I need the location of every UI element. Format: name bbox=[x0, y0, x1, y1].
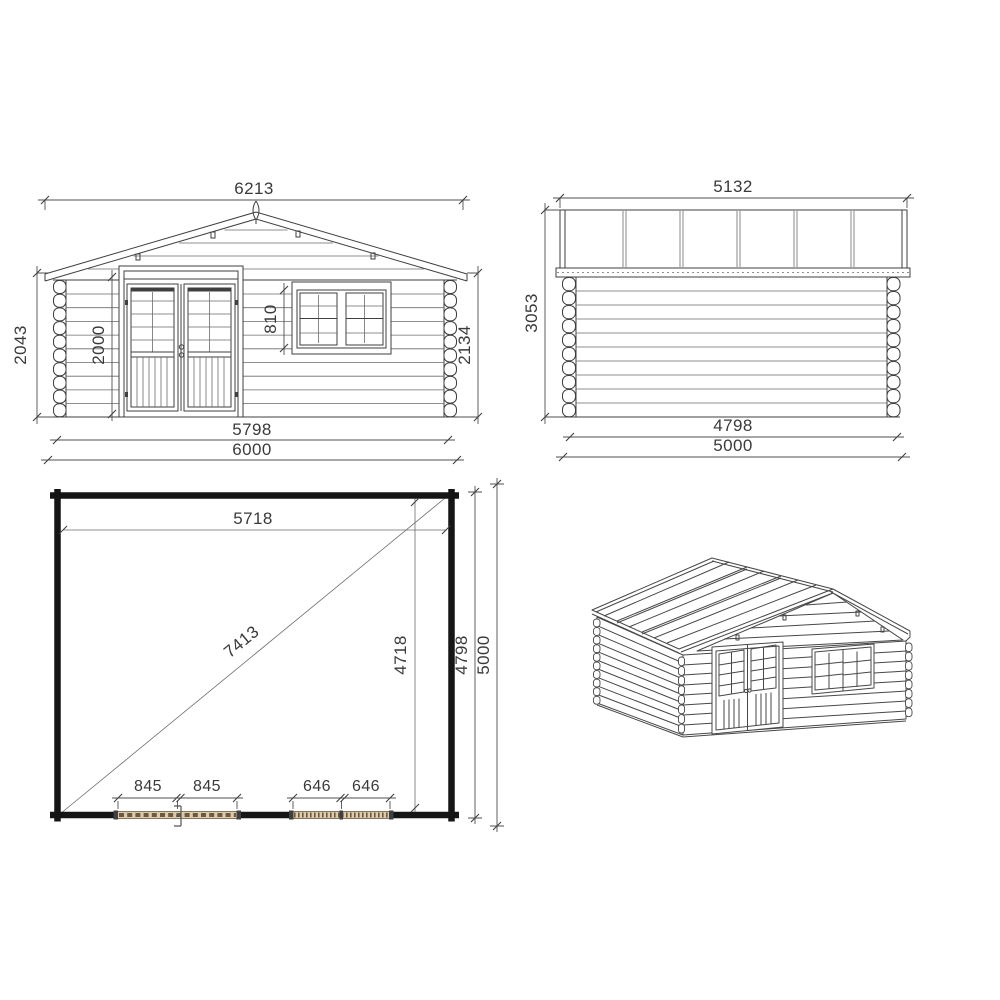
dim-plan-door-half-a-label: 845 bbox=[134, 778, 162, 795]
dim-side-total-depth-label: 5000 bbox=[713, 436, 752, 455]
side-elevation-view: 5132 3053 bbox=[522, 177, 914, 461]
dim-plan-door-half-b-label: 845 bbox=[193, 778, 221, 795]
dim-front-height-left: 2043 bbox=[11, 266, 53, 424]
dim-front-wall-width-label: 5798 bbox=[232, 420, 271, 439]
dim-front-door-height-label: 2000 bbox=[89, 325, 108, 364]
dim-side-roof-depth: 5132 bbox=[553, 177, 914, 208]
p3d-window bbox=[812, 644, 874, 694]
p3d-back-corner-logs bbox=[594, 619, 601, 704]
front-wall: use[href="#logFL"],use[href="#logFR"],us… bbox=[53, 280, 457, 417]
dim-side-wall-depth-label: 4798 bbox=[713, 416, 752, 435]
dim-front-total-width-label: 6000 bbox=[232, 440, 271, 459]
dim-front-height-right: 2134 bbox=[455, 266, 482, 424]
dim-side-height-label: 3053 bbox=[522, 293, 541, 332]
dim-plan-window-half-a-label: 646 bbox=[303, 778, 331, 795]
front-window bbox=[292, 282, 391, 354]
drawing-canvas: 6213 use[href="#logF bbox=[0, 0, 1000, 1000]
dim-plan-window-halves: 646 646 bbox=[287, 778, 396, 809]
dim-front-door-height: 2000 bbox=[89, 270, 116, 421]
dim-side-roof-depth-label: 5132 bbox=[713, 177, 752, 196]
front-roof bbox=[45, 201, 467, 281]
dim-plan-diagonal-label: 7413 bbox=[220, 622, 263, 662]
dim-plan-total-depth-label: 5000 bbox=[474, 635, 493, 674]
drawing-sheet: 6213 use[href="#logF bbox=[0, 0, 1000, 1000]
side-roof-panel-joints bbox=[623, 211, 854, 267]
front-elevation-view: 6213 use[href="#logF bbox=[11, 179, 482, 464]
dim-plan-side-depth-label: 4798 bbox=[452, 635, 471, 674]
dim-side-height: 3053 bbox=[522, 203, 563, 424]
side-roof bbox=[556, 210, 910, 277]
dim-side-total-depth: 5000 bbox=[556, 436, 910, 461]
gable-siding-lines bbox=[88, 230, 424, 269]
floor-plan-view: 5718 7413 4718 4798 5000 845 845 bbox=[50, 478, 504, 832]
dim-front-height-right-label: 2134 bbox=[455, 325, 474, 364]
dim-plan-inner-width-label: 5718 bbox=[233, 509, 272, 528]
dim-front-height-left-label: 2043 bbox=[11, 325, 30, 364]
side-siding-lines bbox=[576, 291, 887, 403]
log-ends-left: use[href="#logFL"],use[href="#logFR"],us… bbox=[54, 281, 67, 417]
dim-plan-inner-depth-label: 4718 bbox=[391, 635, 410, 674]
side-log-ends-right bbox=[887, 278, 900, 417]
dim-plan-door-halves: 845 845 bbox=[112, 778, 243, 809]
dim-plan-total-depth: 5000 bbox=[474, 478, 504, 832]
front-door bbox=[119, 266, 243, 417]
side-log-ends-left bbox=[563, 278, 576, 417]
side-wall bbox=[563, 277, 901, 417]
p3d-door bbox=[712, 642, 783, 734]
dim-front-total-width: 6000 bbox=[41, 440, 464, 464]
plan-window-symbol bbox=[289, 811, 394, 820]
perspective-view bbox=[592, 558, 912, 737]
dim-plan-window-half-b-label: 646 bbox=[352, 778, 380, 795]
dim-front-roof-width-label: 6213 bbox=[234, 179, 273, 198]
dim-front-window-height-label: 810 bbox=[261, 304, 280, 334]
